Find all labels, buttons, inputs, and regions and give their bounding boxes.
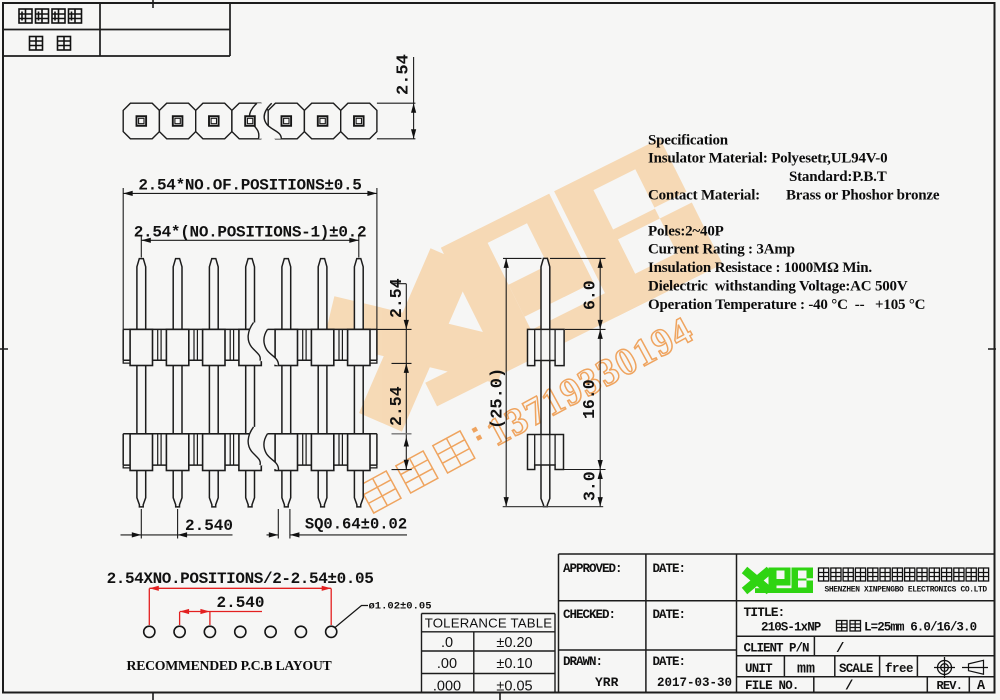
- svg-text:YRR: YRR: [595, 675, 619, 690]
- svg-text:FILE NO.: FILE NO.: [745, 679, 799, 693]
- svg-text:.00: .00: [437, 656, 457, 672]
- svg-text:TITLE:: TITLE:: [744, 605, 785, 620]
- svg-text:/: /: [836, 641, 844, 657]
- svg-text:Standard:P.B.T: Standard:P.B.T: [789, 169, 887, 185]
- svg-text:16.0: 16.0: [580, 379, 599, 419]
- svg-text:DATE:: DATE:: [653, 655, 686, 669]
- svg-text:(25.0): (25.0): [489, 368, 508, 429]
- svg-text:UNIT: UNIT: [745, 662, 773, 676]
- svg-text:CLIENT P/N: CLIENT P/N: [744, 642, 810, 656]
- svg-text:2.540: 2.540: [185, 517, 233, 535]
- svg-text:/: /: [845, 678, 853, 694]
- svg-text:.000: .000: [433, 679, 461, 695]
- svg-text:Insulation Resistace : 1000MΩ: Insulation Resistace : 1000MΩ Min.: [648, 260, 872, 276]
- svg-text:SHENZHEN XINPENGBO ELECTRONICS: SHENZHEN XINPENGBO ELECTRONICS CO.LTD: [825, 586, 988, 595]
- svg-text:2.540: 2.540: [216, 594, 264, 612]
- svg-text:.0: .0: [441, 635, 453, 651]
- svg-text:2.54*NO.OF.POSITIONS±0.5: 2.54*NO.OF.POSITIONS±0.5: [138, 177, 361, 195]
- svg-text:APPROVED:: APPROVED:: [563, 562, 622, 576]
- svg-text:DATE:: DATE:: [653, 608, 686, 622]
- svg-text:DRAWN:: DRAWN:: [563, 655, 602, 669]
- svg-text:free: free: [885, 662, 913, 676]
- svg-text:Specification: Specification: [648, 133, 729, 149]
- svg-text:L=25mm 6.0/16/3.0: L=25mm 6.0/16/3.0: [864, 621, 977, 635]
- svg-text:Insulator Material: Polyesetr,: Insulator Material: Polyesetr,UL94V-0: [648, 151, 887, 167]
- svg-text:±0.20: ±0.20: [496, 635, 532, 651]
- svg-text:210S-1xNP: 210S-1xNP: [761, 621, 821, 635]
- svg-text:±0.05: ±0.05: [496, 679, 532, 695]
- svg-text:2.54: 2.54: [387, 278, 406, 318]
- svg-text:ø1.02±0.05: ø1.02±0.05: [369, 601, 432, 613]
- svg-text:2.54: 2.54: [387, 386, 406, 426]
- svg-text:3.0: 3.0: [581, 471, 600, 501]
- svg-text:2017-03-30: 2017-03-30: [657, 676, 732, 690]
- svg-text:CHECKED:: CHECKED:: [563, 608, 615, 622]
- svg-text:REV.: REV.: [937, 679, 963, 693]
- svg-text:2.54*(NO.POSITIONS-1)±0.2: 2.54*(NO.POSITIONS-1)±0.2: [134, 224, 367, 242]
- svg-text:2.54XNO.POSITIONS/2-2.54±0.05: 2.54XNO.POSITIONS/2-2.54±0.05: [107, 570, 374, 588]
- svg-text:Dielectric withstanding Volta: Dielectric withstanding Voltage:AC 500V: [648, 279, 908, 295]
- svg-text:DATE:: DATE:: [653, 562, 686, 576]
- svg-text:Poles:2~40P: Poles:2~40P: [648, 224, 724, 240]
- svg-text:Contact Material:: Contact Material:: [648, 188, 760, 204]
- svg-text:Operation Temperature : -40 °C: Operation Temperature : -40 °C -- +105 °…: [648, 297, 925, 313]
- svg-text:2.54: 2.54: [395, 54, 414, 95]
- svg-text:SQ0.64±0.02: SQ0.64±0.02: [305, 516, 407, 534]
- svg-text:mm: mm: [797, 661, 815, 678]
- svg-text:RECOMMENDED P.C.B LAYOUT: RECOMMENDED P.C.B LAYOUT: [127, 658, 332, 673]
- svg-text:Current Rating : 3Amp: Current Rating : 3Amp: [648, 242, 795, 258]
- svg-text:Brass or Phoshor bronze: Brass or Phoshor bronze: [786, 188, 940, 204]
- svg-text:A: A: [977, 679, 986, 694]
- svg-text:6.0: 6.0: [581, 280, 600, 310]
- svg-text:TOLERANCE TABLE: TOLERANCE TABLE: [425, 616, 553, 631]
- svg-text:±0.10: ±0.10: [496, 656, 532, 672]
- svg-text:SCALE: SCALE: [839, 662, 873, 676]
